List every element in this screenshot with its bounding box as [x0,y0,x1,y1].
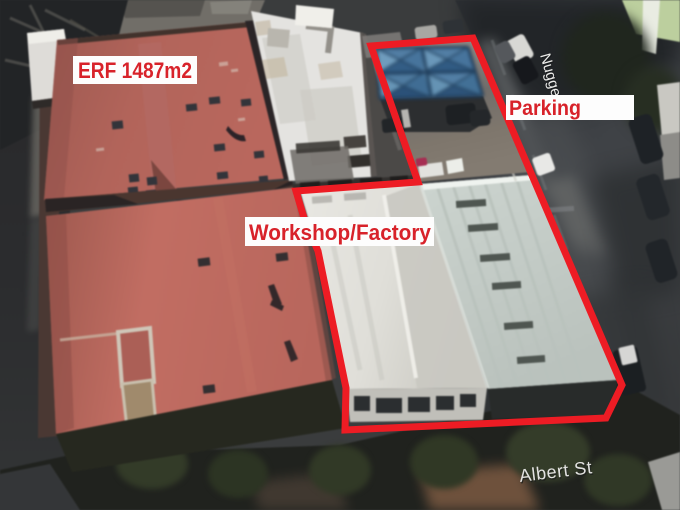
svg-text:Workshop/Factory: Workshop/Factory [249,220,432,245]
svg-text:ERF 1487m2: ERF 1487m2 [78,58,192,83]
svg-text:Parking: Parking [509,97,581,120]
